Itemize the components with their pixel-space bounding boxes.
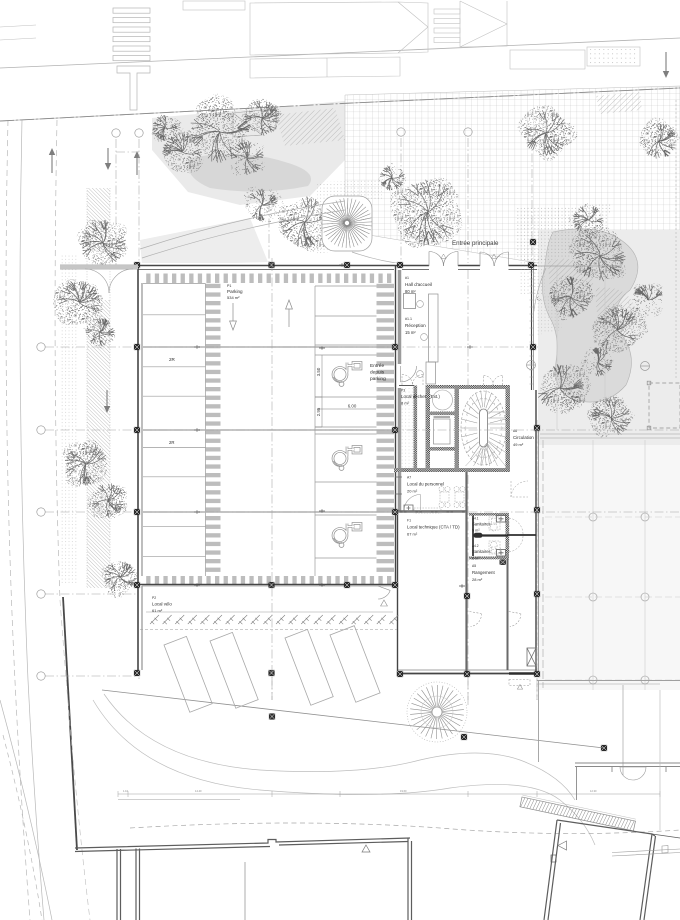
svg-text:3.50: 3.50 (316, 367, 321, 376)
svg-text:Local déchets (Ext.): Local déchets (Ext.) (401, 394, 440, 399)
svg-text:8 m²: 8 m² (401, 401, 410, 406)
svg-text:5 m²: 5 m² (472, 557, 480, 561)
svg-text:A7: A7 (407, 476, 411, 480)
svg-text:A6: A6 (513, 429, 517, 433)
svg-text:14.40: 14.40 (195, 789, 202, 793)
svg-text:2.95: 2.95 (316, 407, 321, 416)
svg-text:parking: parking (370, 376, 386, 382)
svg-text:1.10: 1.10 (123, 789, 129, 793)
svg-text:67 m²: 67 m² (407, 532, 418, 537)
svg-text:P3: P3 (401, 389, 405, 393)
svg-text:depuis: depuis (370, 370, 385, 376)
svg-text:2R: 2R (169, 440, 175, 445)
svg-text:Entrée: Entrée (370, 363, 384, 369)
svg-text:49 m²: 49 m² (513, 442, 524, 447)
svg-text:19.60: 19.60 (400, 789, 407, 793)
svg-text:#1.1: #1.1 (405, 317, 412, 321)
svg-text:Parking: Parking (227, 289, 243, 294)
svg-text:Rangement: Rangement (472, 570, 495, 575)
svg-text:28 m²: 28 m² (472, 577, 483, 582)
svg-text:Entrée principale: Entrée principale (452, 240, 499, 247)
svg-text:5 m²: 5 m² (472, 529, 480, 533)
svg-text:P2: P2 (152, 596, 156, 600)
svg-text:Hall d'accueil: Hall d'accueil (405, 282, 432, 287)
svg-text:Local du personnel: Local du personnel (407, 482, 444, 487)
svg-text:2R: 2R (169, 357, 176, 362)
svg-text:20 m²: 20 m² (407, 489, 418, 494)
svg-text:12.30: 12.30 (590, 789, 597, 793)
svg-text:Circulation: Circulation (513, 435, 534, 440)
svg-text:#1: #1 (405, 276, 409, 280)
svg-text:Local vélo: Local vélo (152, 602, 172, 607)
svg-text:6.00: 6.00 (348, 404, 357, 409)
svg-text:Réception: Réception (405, 323, 426, 328)
svg-text:A5: A5 (472, 564, 476, 568)
svg-text:15 m²: 15 m² (405, 330, 416, 335)
svg-text:A4.2: A4.2 (472, 544, 479, 548)
svg-text:F1: F1 (407, 519, 411, 523)
svg-text:534 m²: 534 m² (227, 295, 240, 300)
svg-text:61 m²: 61 m² (152, 608, 163, 613)
svg-text:Local technique (CTA / TD): Local technique (CTA / TD) (407, 525, 460, 530)
svg-text:Sanitaires: Sanitaires (472, 522, 491, 527)
svg-text:P1: P1 (227, 284, 231, 288)
svg-text:A4.1: A4.1 (472, 517, 479, 521)
svg-text:Sanitaires: Sanitaires (472, 549, 491, 554)
